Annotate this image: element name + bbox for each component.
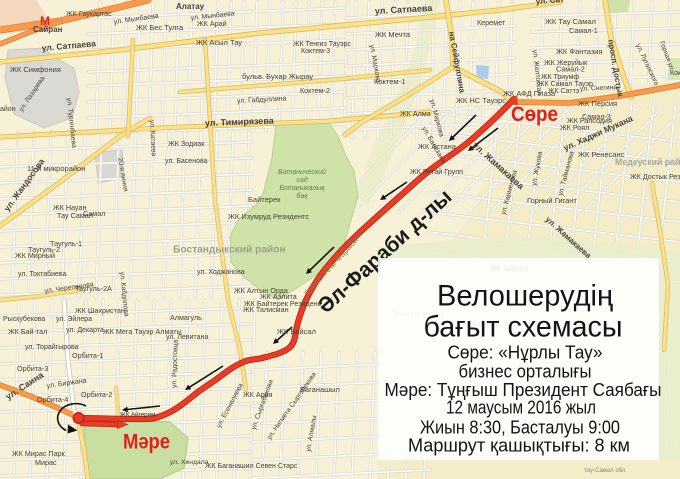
svg-text:Орбита-4: Орбита-4 [37, 395, 68, 404]
svg-text:Керемет: Керемет [477, 18, 506, 27]
svg-text:ЖК Шахристан: ЖК Шахристан [75, 306, 125, 315]
svg-text:Коктем-3: Коктем-3 [301, 48, 330, 55]
svg-text:Сөре: Сөре [511, 103, 558, 126]
svg-text:Ботаникалық: Ботаникалық [279, 185, 325, 192]
svg-text:Самал: Самал [83, 209, 105, 218]
svg-text:сад: сад [296, 176, 307, 184]
svg-text:Горный Гигант: Горный Гигант [527, 196, 577, 205]
svg-text:Кок: Кок [670, 70, 680, 77]
svg-text:ЖК Персия: ЖК Персия [578, 99, 617, 108]
svg-text:ул. Декарта: ул. Декарта [66, 327, 104, 334]
svg-text:ул. Эйлера: ул. Эйлера [56, 315, 92, 323]
svg-text:ул. Басенова: ул. Басенова [165, 158, 208, 165]
svg-text:Мирас: Мирас [35, 458, 57, 467]
svg-text:ЖК Алма: ЖК Алма [400, 109, 431, 118]
svg-text:ЖК Роял: ЖК Роял [560, 123, 589, 132]
svg-text:Самал-1: Самал-1 [569, 26, 598, 35]
svg-text:ЖК Мечта: ЖК Мечта [375, 30, 411, 39]
svg-text:ЖК Байсал: ЖК Байсал [277, 327, 316, 336]
svg-text:Ботанический: Ботанический [278, 168, 326, 176]
svg-text:Алмагуль: Алмагуль [170, 313, 202, 322]
svg-text:12 маусым 2016 жыл: 12 маусым 2016 жыл [446, 397, 596, 418]
svg-text:ЖК НС Тауэрс: ЖК НС Тауэрс [456, 96, 506, 105]
svg-text:Сайран: Сайран [33, 25, 63, 34]
svg-text:ЖК Гаукартас: ЖК Гаукартас [66, 9, 112, 18]
svg-text:Коктем-2: Коктем-2 [300, 86, 330, 95]
svg-text:ул. Ходжанова: ул. Ходжанова [197, 269, 245, 276]
svg-text:Рыскубекова: Рыскубекова [3, 315, 45, 323]
svg-text:Сөре: «Нұрлы Тау»: Сөре: «Нұрлы Тау» [448, 342, 603, 363]
svg-text:бағыт схемасы: бағыт схемасы [424, 311, 623, 344]
svg-text:ЖК Астана: ЖК Астана [418, 142, 457, 151]
svg-text:Мәре: Мәре [123, 431, 170, 454]
svg-text:Орбита-1: Орбита-1 [72, 351, 103, 360]
svg-text:ЖК Мирас Парк: ЖК Мирас Парк [12, 449, 66, 458]
svg-text:Байтерек: Байтерек [248, 195, 281, 204]
svg-text:Маршрут қашықтығы: 8 км: Маршрут қашықтығы: 8 км [408, 435, 630, 456]
svg-text:ЖК Достык Рез: ЖК Достык Рез [630, 172, 680, 181]
svg-text:Самал-2: Самал-2 [556, 65, 585, 74]
svg-text:ЖК Тенгиз Тауэрс: ЖК Тенгиз Тауэрс [293, 41, 351, 48]
svg-text:ЖК Бай-тал: ЖК Бай-тал [8, 327, 47, 336]
svg-text:ЖК Симфония: ЖК Симфония [10, 65, 61, 74]
svg-text:ЖК Изумруд Резидентс: ЖК Изумруд Резидентс [228, 212, 309, 221]
svg-text:ул. Торайгырова: ул. Торайгырова [25, 343, 79, 351]
svg-text:ЖК Мирный: ЖК Мирный [15, 251, 55, 260]
svg-text:бульв. Бухар Жырау: бульв. Бухар Жырау [242, 72, 313, 81]
svg-text:ЖК Триумф: ЖК Триумф [541, 74, 579, 81]
svg-text:Медеуский рай: Медеуский рай [615, 157, 680, 167]
svg-text:бақ: бақ [296, 192, 308, 200]
svg-text:ЖК Тау Самал: ЖК Тау Самал [545, 17, 596, 26]
svg-text:ЖК Баганашил Севен Старс: ЖК Баганашил Севен Старс [205, 463, 298, 470]
svg-text:Орбита-2: Орбита-2 [81, 390, 112, 399]
svg-text:Алатау: Алатау [176, 2, 205, 11]
svg-text:ЖК Ретай Групп: ЖК Ретай Групп [410, 167, 463, 176]
svg-text:ЖК Фантазия: ЖК Фантазия [556, 47, 603, 56]
svg-text:ЖК Зодиак: ЖК Зодиак [168, 139, 205, 148]
svg-text:Велошерудің: Велошерудің [437, 280, 613, 313]
svg-text:ЖК Бес Тулга: ЖК Бес Тулга [136, 23, 184, 32]
svg-text:ЖК Арай: ЖК Арай [197, 19, 227, 28]
svg-text:тау-Самал обл: тау-Самал обл [584, 468, 626, 474]
svg-text:ул. Хендала: ул. Хендала [170, 459, 209, 466]
svg-text:айон: айон [0, 105, 16, 113]
svg-text:ЖК АФД Плаза: ЖК АФД Плаза [503, 89, 556, 98]
svg-text:Бостандыкский район: Бостандыкский район [173, 245, 286, 256]
svg-text:Орбита-3: Орбита-3 [17, 364, 48, 373]
svg-text:ЖК Талисман: ЖК Талисман [243, 305, 289, 314]
svg-text:ЖК Айгерим: ЖК Айгерим [120, 412, 155, 419]
svg-text:ЖК Асыл Тау: ЖК Асыл Тау [196, 38, 242, 47]
svg-text:ул. Токтабиева: ул. Токтабиева [18, 270, 67, 278]
